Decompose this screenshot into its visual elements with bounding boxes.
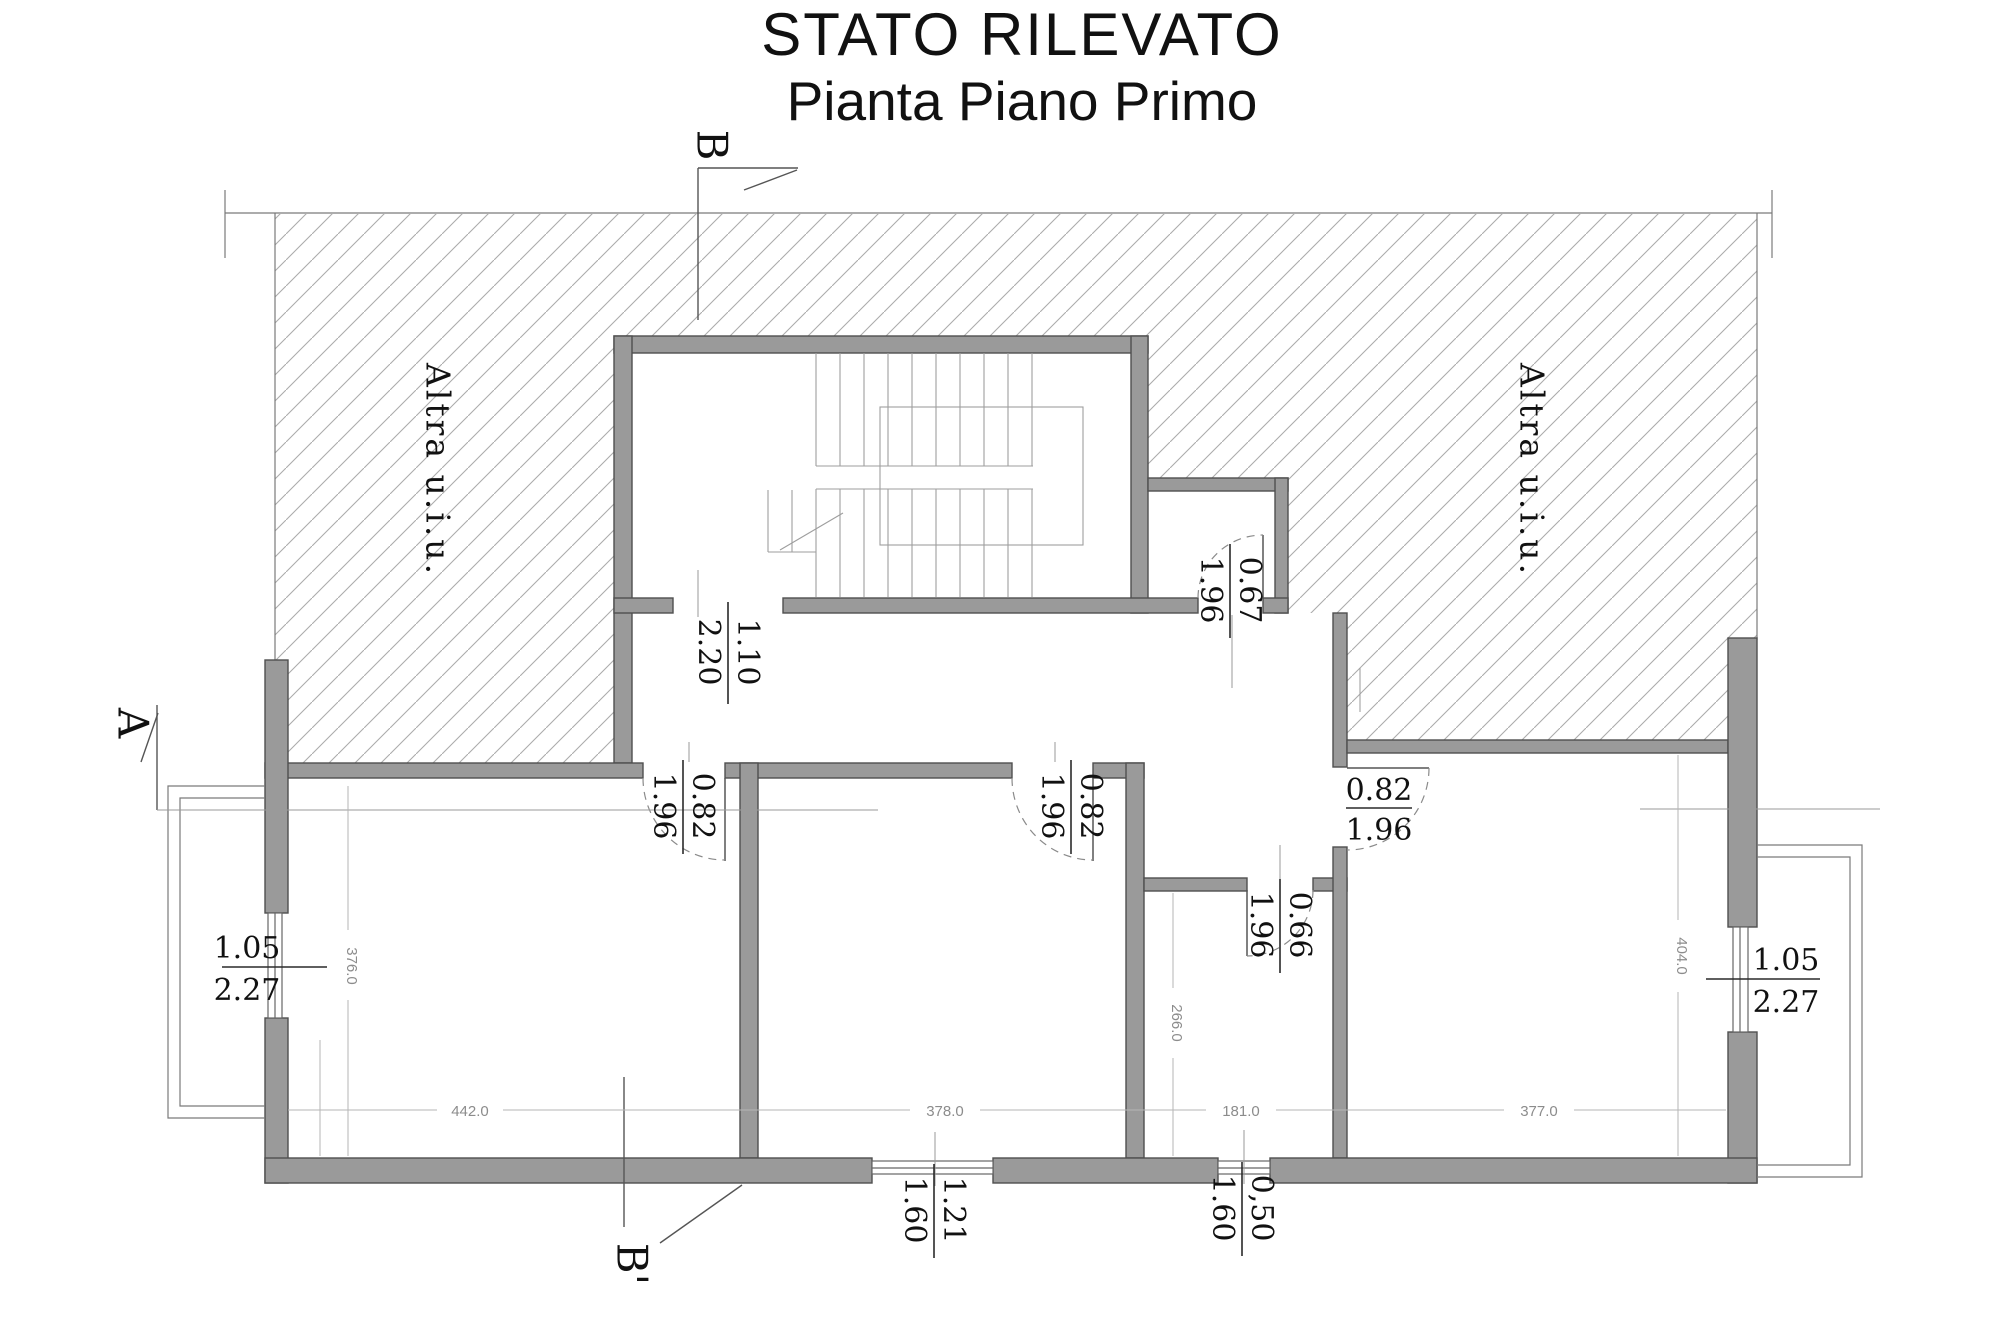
svg-text:0.82: 0.82 [685,773,720,840]
floor-plan-drawing: STATO RILEVATO Pianta Piano Primo Altra … [0,0,2000,1333]
label-right-room-door: 0.82 1.96 [1346,773,1413,848]
label-bottom-middle-window: 1.21 1.60 [897,1164,971,1258]
room-dimension-labels: 442.0 378.0 181.0 377.0 376.0 266.0 404.… [343,937,1690,1120]
svg-text:1.05: 1.05 [214,931,281,966]
svg-text:1.96: 1.96 [1193,557,1228,624]
label-small-room-door: 0.66 1.96 [1243,879,1317,973]
svg-text:B': B' [607,1243,656,1285]
svg-text:1.60: 1.60 [1205,1175,1240,1242]
drawing-title: STATO RILEVATO Pianta Piano Primo [761,1,1282,132]
label-middle-room-door: 0.82 1.96 [1034,760,1108,854]
hatch-top-strip [630,214,1148,336]
dim-right-height: 404.0 [1673,937,1690,975]
title-line1: STATO RILEVATO [761,1,1282,68]
label-stairwell-door: 1.10 2.20 [691,602,765,704]
svg-text:B: B [687,130,736,161]
svg-text:1.96: 1.96 [1034,773,1069,840]
svg-text:A: A [108,707,157,739]
stair-direction-arrow [780,513,843,550]
svg-text:0.82: 0.82 [1073,773,1108,840]
label-left-room-door: 0.82 1.96 [646,760,720,854]
dim-right-width: 377.0 [1520,1103,1558,1120]
svg-text:1.05: 1.05 [1753,943,1820,978]
svg-text:1.96: 1.96 [1243,892,1278,959]
dim-left-height: 376.0 [343,947,360,985]
label-right-window: 1.05 2.27 [1706,943,1820,1020]
dim-middle-width: 378.0 [926,1103,964,1120]
dim-left-width: 442.0 [451,1103,489,1120]
svg-text:Altra u.i.u.: Altra u.i.u. [418,362,457,577]
dim-small-width: 181.0 [1222,1103,1260,1120]
label-bottom-small-window: 0,50 1.60 [1205,1162,1279,1256]
staircase [768,353,1083,597]
title-line2: Pianta Piano Primo [787,70,1258,132]
floor-plan-page: STATO RILEVATO Pianta Piano Primo Altra … [0,0,2000,1333]
svg-text:1.60: 1.60 [897,1177,932,1244]
label-storage-door: 0.67 1.96 [1193,544,1267,638]
svg-text:2.27: 2.27 [1753,985,1820,1020]
area-label-left: Altra u.i.u. [418,362,457,577]
svg-text:0.67: 0.67 [1232,557,1267,624]
svg-text:1.10: 1.10 [730,619,765,686]
svg-text:0.66: 0.66 [1282,892,1317,959]
svg-text:1.96: 1.96 [1346,813,1413,848]
svg-text:2.20: 2.20 [691,619,726,686]
svg-text:Altra u.i.u.: Altra u.i.u. [1512,362,1551,577]
windows [268,913,1748,1174]
stair-core-outline [880,407,1083,545]
svg-text:1.21: 1.21 [936,1177,971,1244]
dim-small-height: 266.0 [1168,1004,1185,1042]
svg-text:2.27: 2.27 [214,973,281,1008]
svg-text:0,50: 0,50 [1244,1175,1279,1242]
area-label-right: Altra u.i.u. [1512,362,1551,577]
balconies [168,786,1862,1177]
svg-text:1.96: 1.96 [646,773,681,840]
svg-text:0.82: 0.82 [1346,773,1413,808]
